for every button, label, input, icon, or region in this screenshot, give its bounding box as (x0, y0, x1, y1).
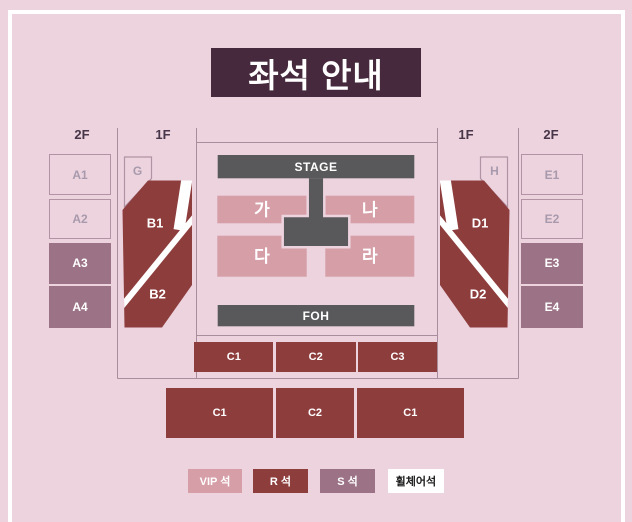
section-e4: E4 (521, 286, 583, 328)
seat-guide-canvas: 좌석 안내 2F 1F 1F 2F (0, 0, 632, 522)
legend-wheelchair-seat: 휠체어석 (388, 469, 444, 493)
page-title: 좌석 안내 (211, 48, 421, 97)
legend-s-seat: S 석 (320, 469, 375, 493)
section-c2-inner: C2 (276, 342, 356, 372)
section-c1-outer-left: C1 (166, 388, 273, 438)
floor-label-right-2f: 2F (529, 127, 573, 142)
section-a3: A3 (49, 243, 111, 284)
legend-vip-seat: VIP 석 (188, 469, 241, 493)
section-e1: E1 (521, 154, 583, 195)
floor-label-left-1f: 1F (141, 127, 185, 142)
legend-r-seat: R 석 (253, 469, 309, 493)
floor-label-right-1f: 1F (444, 127, 488, 142)
section-c2-outer: C2 (276, 388, 355, 438)
section-a1: A1 (49, 154, 111, 195)
section-c3-inner: C3 (358, 342, 438, 372)
section-e2: E2 (521, 199, 583, 239)
floor-label-left-2f: 2F (60, 127, 104, 142)
section-c1-inner: C1 (194, 342, 273, 372)
section-e3: E3 (521, 243, 583, 284)
section-a4: A4 (49, 286, 111, 328)
section-c1-outer-right: C1 (357, 388, 464, 438)
section-a2: A2 (49, 199, 111, 239)
